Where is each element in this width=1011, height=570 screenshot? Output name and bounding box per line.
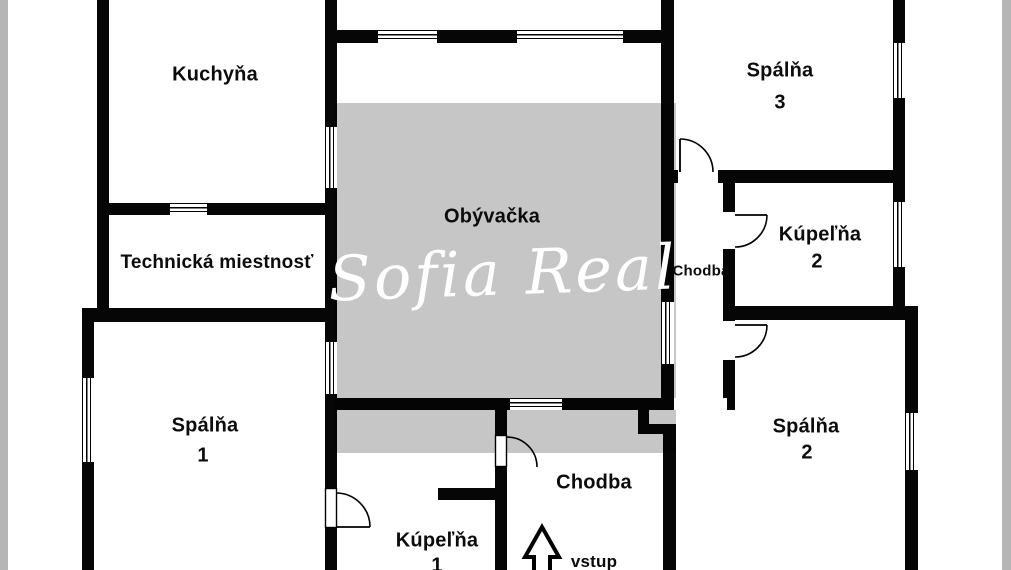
entrance-arrow-icon: [525, 527, 559, 570]
door-arc-bath2: [735, 215, 767, 247]
room-label-bath2: Kúpeľňa: [779, 224, 861, 247]
room-label-bedroom3: Spálňa: [747, 60, 814, 83]
room-label-kitchen: Kuchyňa: [172, 64, 258, 87]
entrance-label: vstup: [571, 552, 617, 570]
room-label-bedroom1: Spálňa: [172, 415, 239, 438]
floor-plan: Kuchyňa Spálňa 3 Technická miestnosť Obý…: [0, 0, 1011, 570]
door-arc-bedroom2: [735, 325, 767, 357]
room-label-hall-upper: Chodba: [672, 263, 729, 280]
doors-and-arrow-layer: [0, 0, 1011, 570]
door-arc-bath1: [496, 436, 538, 468]
room-label-bedroom2: Spálňa: [773, 416, 840, 439]
room-label-bath1: Kúpeľňa: [396, 530, 478, 553]
room-label-hall-lower: Chodba: [556, 472, 632, 495]
room-number-bath2: 2: [811, 251, 822, 274]
door-arc-bedroom1: [326, 489, 371, 528]
room-number-bedroom1: 1: [197, 445, 208, 468]
room-label-living: Obývačka: [444, 206, 540, 229]
door-arc-bedroom3: [680, 139, 713, 172]
room-number-bedroom2: 2: [801, 442, 812, 465]
room-label-technical: Technická miestnosť: [120, 252, 313, 274]
room-number-bath1: 1: [431, 555, 442, 570]
room-number-bedroom3: 3: [774, 92, 785, 115]
